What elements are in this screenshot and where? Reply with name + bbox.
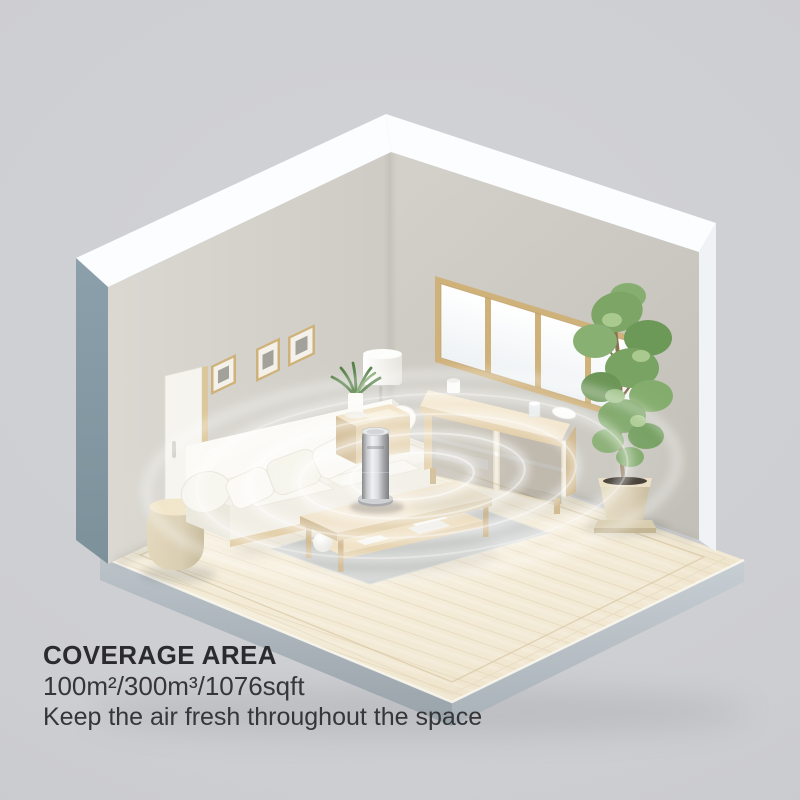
purifier-top-ring — [367, 429, 385, 434]
right-wall-end-face — [699, 223, 716, 552]
caption-tagline: Keep the air fresh throughout the space — [43, 702, 482, 733]
purifier-seam — [362, 472, 389, 473]
caption-title: COVERAGE AREA — [43, 639, 482, 671]
drum-lamp-shade-top — [363, 349, 402, 359]
product-image: COVERAGE AREA 100m²/300m³/1076sqft Keep … — [0, 0, 800, 800]
window-pane-1 — [441, 284, 485, 371]
purifier-body — [362, 431, 389, 499]
caption-specs: 100m²/300m³/1076sqft — [43, 671, 482, 702]
left-wall-end-face — [76, 258, 108, 564]
caption: COVERAGE AREA 100m²/300m³/1076sqft Keep … — [43, 639, 482, 733]
purifier-logo-band — [367, 446, 384, 449]
